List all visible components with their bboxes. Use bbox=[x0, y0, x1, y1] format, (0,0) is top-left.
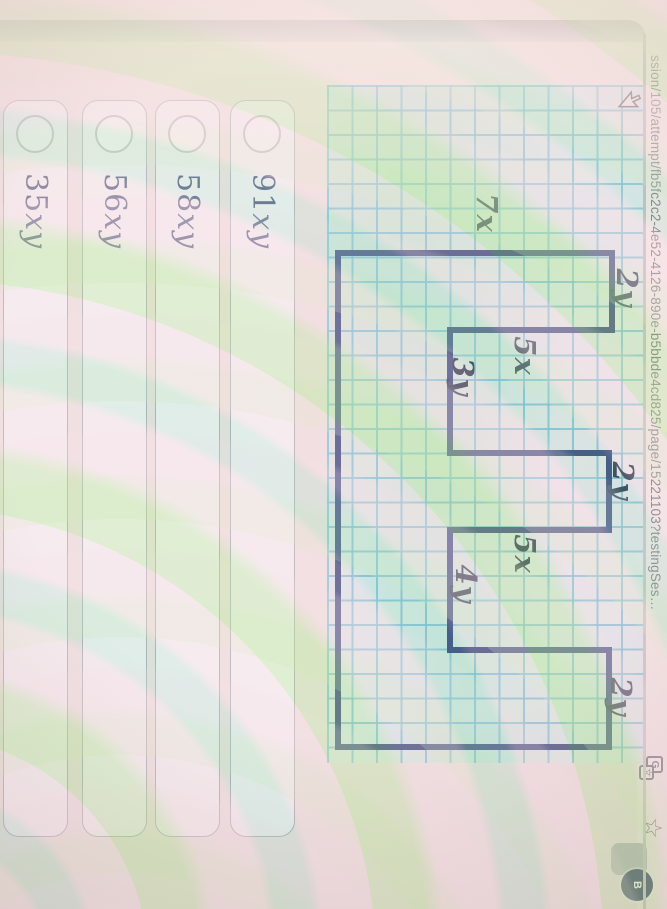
radio-button[interactable] bbox=[169, 115, 207, 153]
figure-label-7x: 7x bbox=[470, 193, 504, 232]
figure-label-5x-second: 5x bbox=[508, 534, 542, 573]
figure-label-2y-left: 2y bbox=[610, 268, 644, 307]
answer-option-58xy[interactable]: 58xy bbox=[155, 100, 220, 837]
answer-option-56xy[interactable]: 56xy bbox=[82, 100, 147, 837]
figure-label-3y: 3y bbox=[446, 357, 480, 396]
toolbar-divider bbox=[643, 34, 646, 909]
url-bar[interactable]: ssion/105/attempt/fb5fc2c2-4e52-4126-890… bbox=[645, 55, 665, 715]
profile-avatar[interactable]: B bbox=[621, 869, 653, 901]
figure-label-5x-first: 5x bbox=[508, 336, 542, 375]
screen-photo: ssion/105/attempt/fb5fc2c2-4e52-4126-890… bbox=[0, 0, 667, 909]
window-left-edge bbox=[0, 20, 646, 42]
answer-option-91xy[interactable]: 91xy bbox=[230, 100, 295, 837]
e-shaped-polygon bbox=[338, 253, 612, 747]
option-label: 56xy bbox=[97, 173, 132, 249]
mouse-cursor-icon bbox=[617, 85, 643, 111]
answer-option-35xy[interactable]: 35xy bbox=[3, 100, 68, 837]
question-figure-grid: 7x 2y 5x 3y 2y 5x 4y 2y bbox=[327, 85, 643, 763]
option-label: 58xy bbox=[170, 173, 205, 249]
radio-button[interactable] bbox=[244, 115, 282, 153]
radio-button[interactable] bbox=[96, 115, 134, 153]
figure-label-4y: 4y bbox=[449, 564, 483, 603]
browser-viewport: ssion/105/attempt/fb5fc2c2-4e52-4126-890… bbox=[0, 0, 667, 909]
figure-label-2y-middle: 2y bbox=[606, 461, 640, 500]
figure-label-2y-right: 2y bbox=[604, 677, 638, 716]
figure-canvas bbox=[327, 85, 643, 763]
radio-button[interactable] bbox=[17, 115, 55, 153]
option-label: 35xy bbox=[18, 173, 53, 249]
option-label: 91xy bbox=[245, 173, 280, 249]
